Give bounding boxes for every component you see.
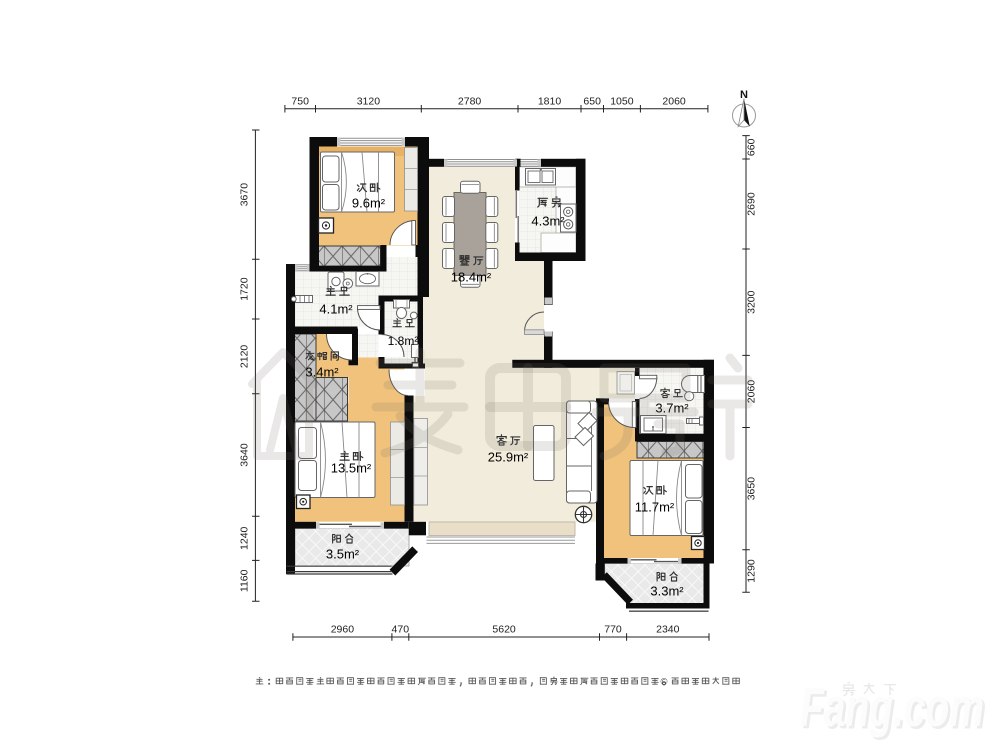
- svg-text:3120: 3120: [357, 96, 381, 108]
- svg-text:1290: 1290: [746, 559, 758, 583]
- svg-text:2340: 2340: [656, 624, 680, 636]
- svg-text:2690: 2690: [746, 192, 758, 216]
- svg-text:1.8m²: 1.8m²: [388, 334, 419, 348]
- svg-text:9.6m²: 9.6m²: [352, 196, 386, 211]
- svg-text:1050: 1050: [610, 96, 634, 108]
- svg-text:3640: 3640: [239, 443, 251, 467]
- svg-text:3650: 3650: [746, 477, 758, 501]
- svg-text:470: 470: [392, 624, 410, 636]
- svg-text:Fang.com: Fang.com: [800, 676, 984, 738]
- svg-text:3.5m²: 3.5m²: [326, 547, 360, 562]
- svg-text:1160: 1160: [239, 569, 251, 592]
- svg-text:3670: 3670: [239, 183, 251, 207]
- svg-text:2120: 2120: [239, 345, 251, 369]
- svg-text:650: 650: [583, 96, 601, 108]
- svg-text:©: ©: [661, 677, 668, 688]
- svg-text:750: 750: [291, 96, 309, 108]
- svg-text:2060: 2060: [662, 96, 686, 108]
- svg-text:3.3m²: 3.3m²: [650, 584, 684, 599]
- svg-text:770: 770: [604, 624, 622, 636]
- svg-text:2780: 2780: [458, 96, 482, 108]
- svg-text:4.3m²: 4.3m²: [531, 214, 565, 229]
- svg-text:1720: 1720: [239, 277, 251, 301]
- svg-text:5620: 5620: [492, 624, 516, 636]
- svg-text:13.5m²: 13.5m²: [331, 461, 372, 476]
- svg-text:1810: 1810: [538, 96, 562, 108]
- svg-text:1240: 1240: [239, 526, 251, 550]
- svg-text:25.9m²: 25.9m²: [488, 450, 529, 465]
- svg-text:4.1m²: 4.1m²: [319, 302, 353, 317]
- svg-text:2960: 2960: [331, 624, 355, 636]
- svg-text:660: 660: [746, 138, 758, 156]
- svg-text:3200: 3200: [746, 290, 758, 314]
- svg-text:11.7m²: 11.7m²: [635, 500, 675, 515]
- svg-text:18.4m²: 18.4m²: [451, 270, 492, 285]
